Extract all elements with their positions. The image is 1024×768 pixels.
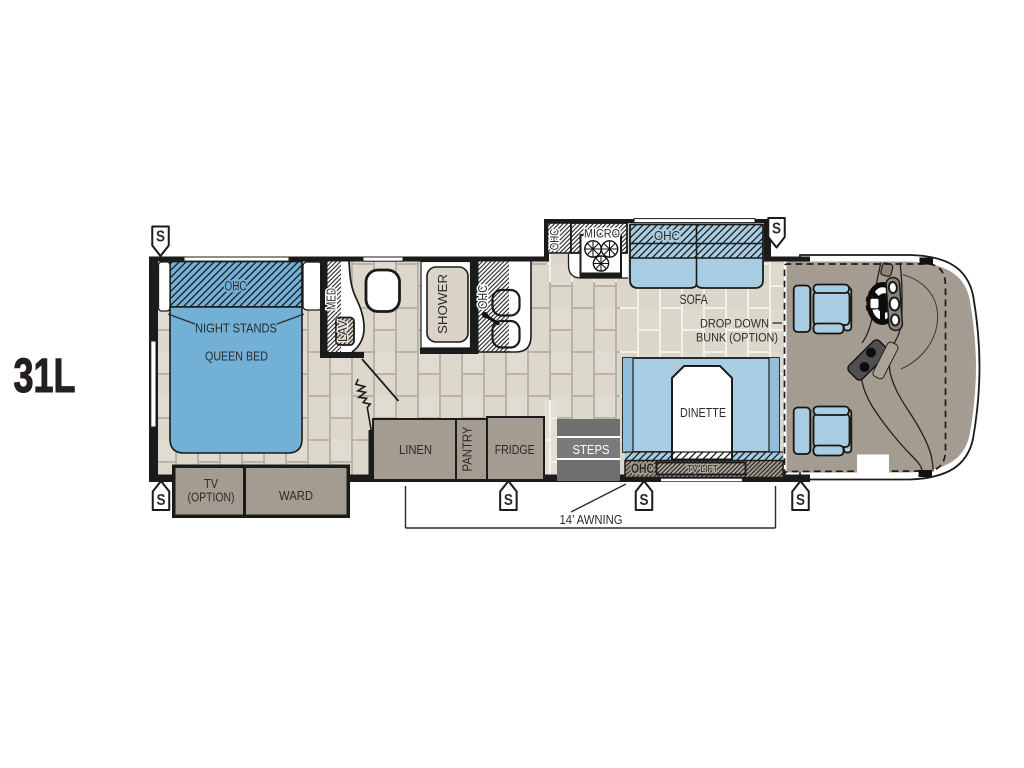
svg-text:OHC: OHC <box>476 285 490 309</box>
svg-text:QUEEN BED: QUEEN BED <box>205 349 268 364</box>
svg-text:FRIDGE: FRIDGE <box>495 442 535 457</box>
svg-text:PANTRY: PANTRY <box>460 426 475 471</box>
svg-text:S: S <box>504 492 513 509</box>
svg-text:SHOWER: SHOWER <box>435 274 450 334</box>
svg-text:DROP DOWN: DROP DOWN <box>700 317 769 331</box>
svg-text:OHC: OHC <box>225 279 247 294</box>
svg-text:MED: MED <box>323 288 338 310</box>
svg-text:LINEN: LINEN <box>399 442 432 457</box>
svg-text:SOFA: SOFA <box>680 291 708 307</box>
svg-text:MICRO: MICRO <box>584 227 620 241</box>
svg-text:S: S <box>157 492 166 509</box>
svg-text:BUNK (OPTION): BUNK (OPTION) <box>696 331 778 345</box>
svg-text:WARD: WARD <box>279 488 313 503</box>
svg-text:DINETTE: DINETTE <box>680 405 726 420</box>
svg-text:TV LIFT: TV LIFT <box>687 464 718 475</box>
svg-text:NIGHT STANDS: NIGHT STANDS <box>195 321 277 336</box>
svg-text:S: S <box>796 492 805 509</box>
svg-text:OHC: OHC <box>631 461 654 476</box>
svg-text:OHC: OHC <box>654 229 680 243</box>
svg-text:OHC: OHC <box>548 228 562 250</box>
svg-text:STEPS: STEPS <box>573 442 610 457</box>
svg-text:TV: TV <box>204 477 219 491</box>
svg-text:S: S <box>640 492 649 509</box>
svg-text:14’ AWNING: 14’ AWNING <box>560 512 623 527</box>
svg-text:S: S <box>156 229 165 246</box>
svg-text:(OPTION): (OPTION) <box>188 491 235 505</box>
svg-text:31L: 31L <box>14 350 76 403</box>
svg-text:S: S <box>772 221 781 238</box>
svg-text:LAV: LAV <box>336 319 350 342</box>
